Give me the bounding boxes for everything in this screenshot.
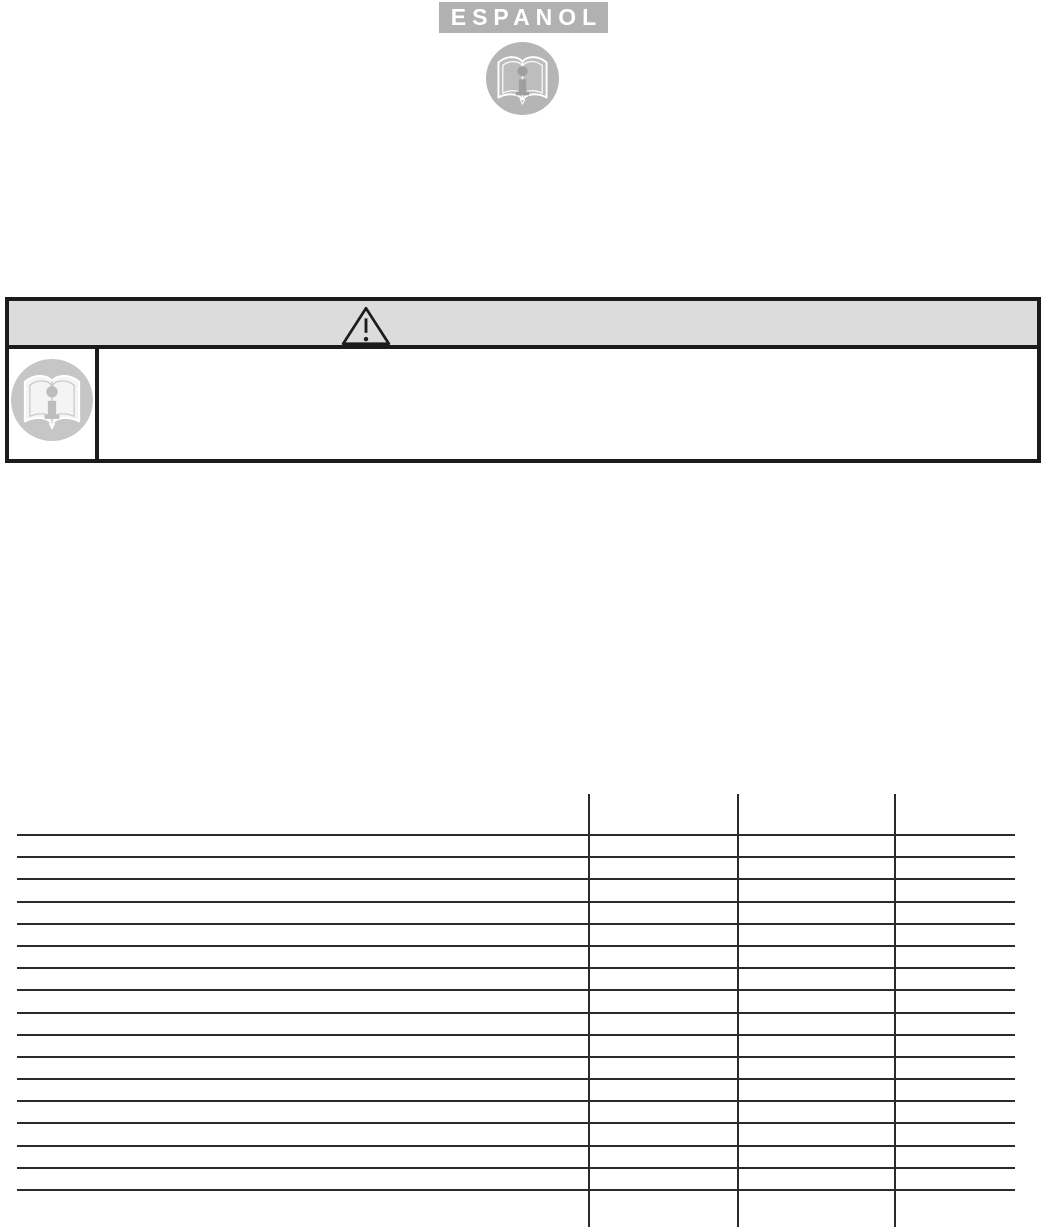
manual-book-icon — [11, 359, 93, 441]
table-row — [17, 1145, 1015, 1167]
table-row — [17, 1078, 1015, 1100]
table-row — [17, 878, 1015, 900]
manual-info-icon — [486, 42, 559, 115]
warning-body-row — [9, 349, 1037, 459]
document-page: ESPANOL — [0, 0, 1044, 1229]
table-row — [17, 834, 1015, 856]
open-book-info-icon — [486, 42, 559, 115]
open-book-info-icon — [11, 359, 93, 441]
note-text-cell — [99, 349, 1037, 459]
parts-table — [17, 834, 1015, 1191]
table-column-divider — [894, 794, 896, 1227]
table-row — [17, 1100, 1015, 1122]
table-column-divider — [588, 794, 590, 1227]
language-label: ESPANOL — [445, 4, 602, 31]
table-row — [17, 1122, 1015, 1144]
language-banner: ESPANOL — [439, 2, 608, 33]
warning-header-bar — [9, 301, 1037, 349]
warning-triangle-icon — [338, 304, 394, 348]
table-row — [17, 856, 1015, 878]
table-row — [17, 967, 1015, 989]
table-column-divider — [737, 794, 739, 1227]
table-row — [17, 1034, 1015, 1056]
table-row — [17, 923, 1015, 945]
table-row — [17, 1056, 1015, 1078]
warning-note-box — [5, 297, 1041, 463]
table-row — [17, 989, 1015, 1011]
note-icon-cell — [9, 349, 99, 459]
table-row — [17, 1012, 1015, 1034]
table-row — [17, 901, 1015, 923]
table-row — [17, 945, 1015, 967]
table-row — [17, 1167, 1015, 1189]
